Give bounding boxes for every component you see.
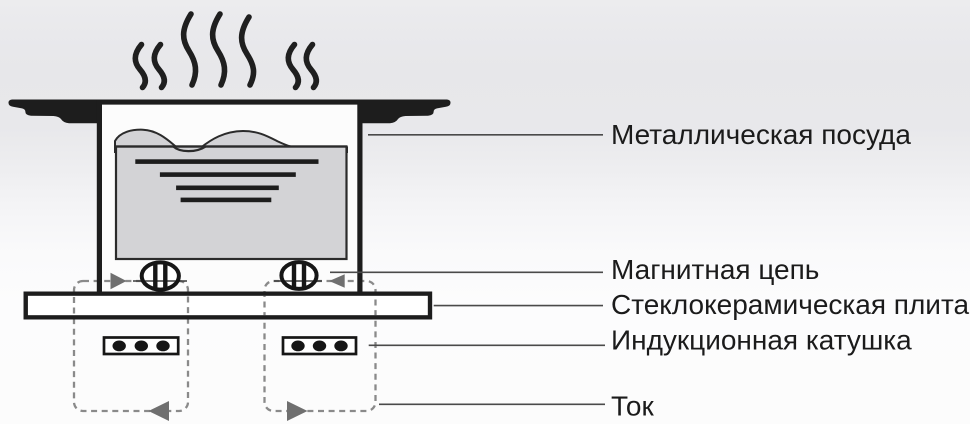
svg-text:Стеклокерамическая плита: Стеклокерамическая плита [611,289,969,320]
svg-text:Магнитная цепь: Магнитная цепь [611,254,819,285]
svg-text:Ток: Ток [611,391,654,422]
svg-text:Металлическая посуда: Металлическая посуда [611,119,911,150]
svg-text:Индукционная катушка: Индукционная катушка [611,325,912,356]
